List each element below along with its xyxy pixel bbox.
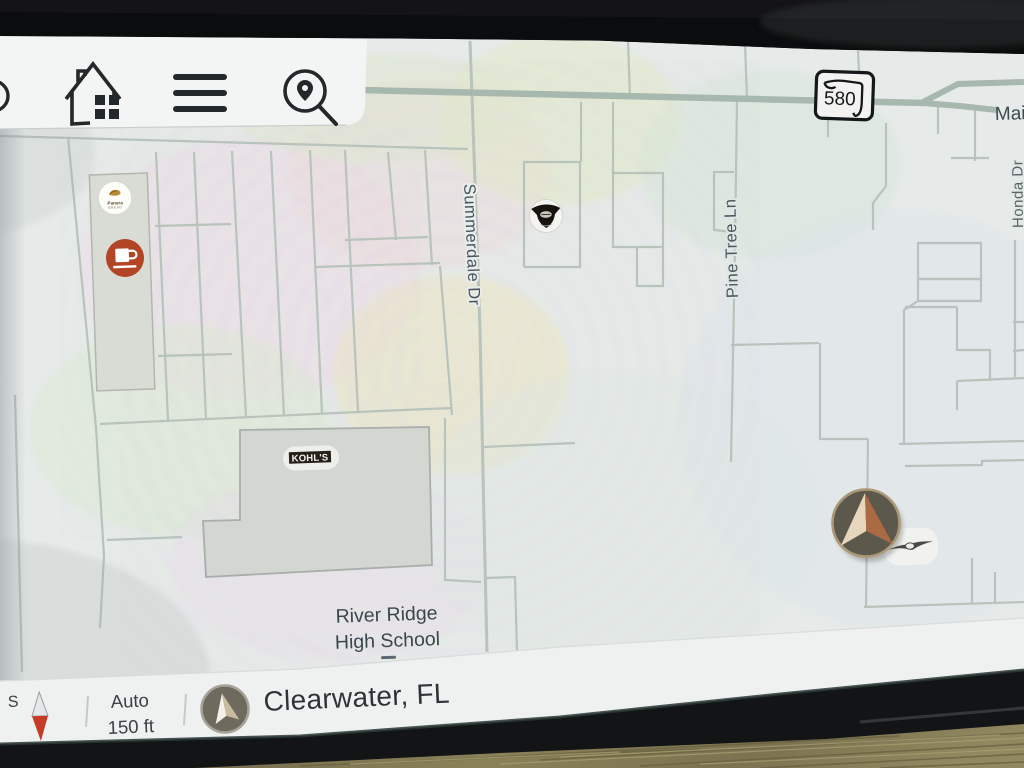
svg-text:Main: Main <box>995 103 1024 125</box>
svg-text:High School: High School <box>335 628 441 654</box>
svg-text:River Ridge: River Ridge <box>335 602 438 628</box>
svg-text:Pine Tree Ln: Pine Tree Ln <box>721 198 742 298</box>
svg-text:150 ft: 150 ft <box>107 715 154 738</box>
svg-text:Auto: Auto <box>110 689 149 712</box>
svg-text:KOHL'S: KOHL'S <box>291 452 328 464</box>
svg-text:BREAD: BREAD <box>108 205 122 209</box>
svg-text:S: S <box>8 694 19 711</box>
svg-text:580: 580 <box>824 88 856 110</box>
svg-text:Honda Dr: Honda Dr <box>1009 160 1024 228</box>
